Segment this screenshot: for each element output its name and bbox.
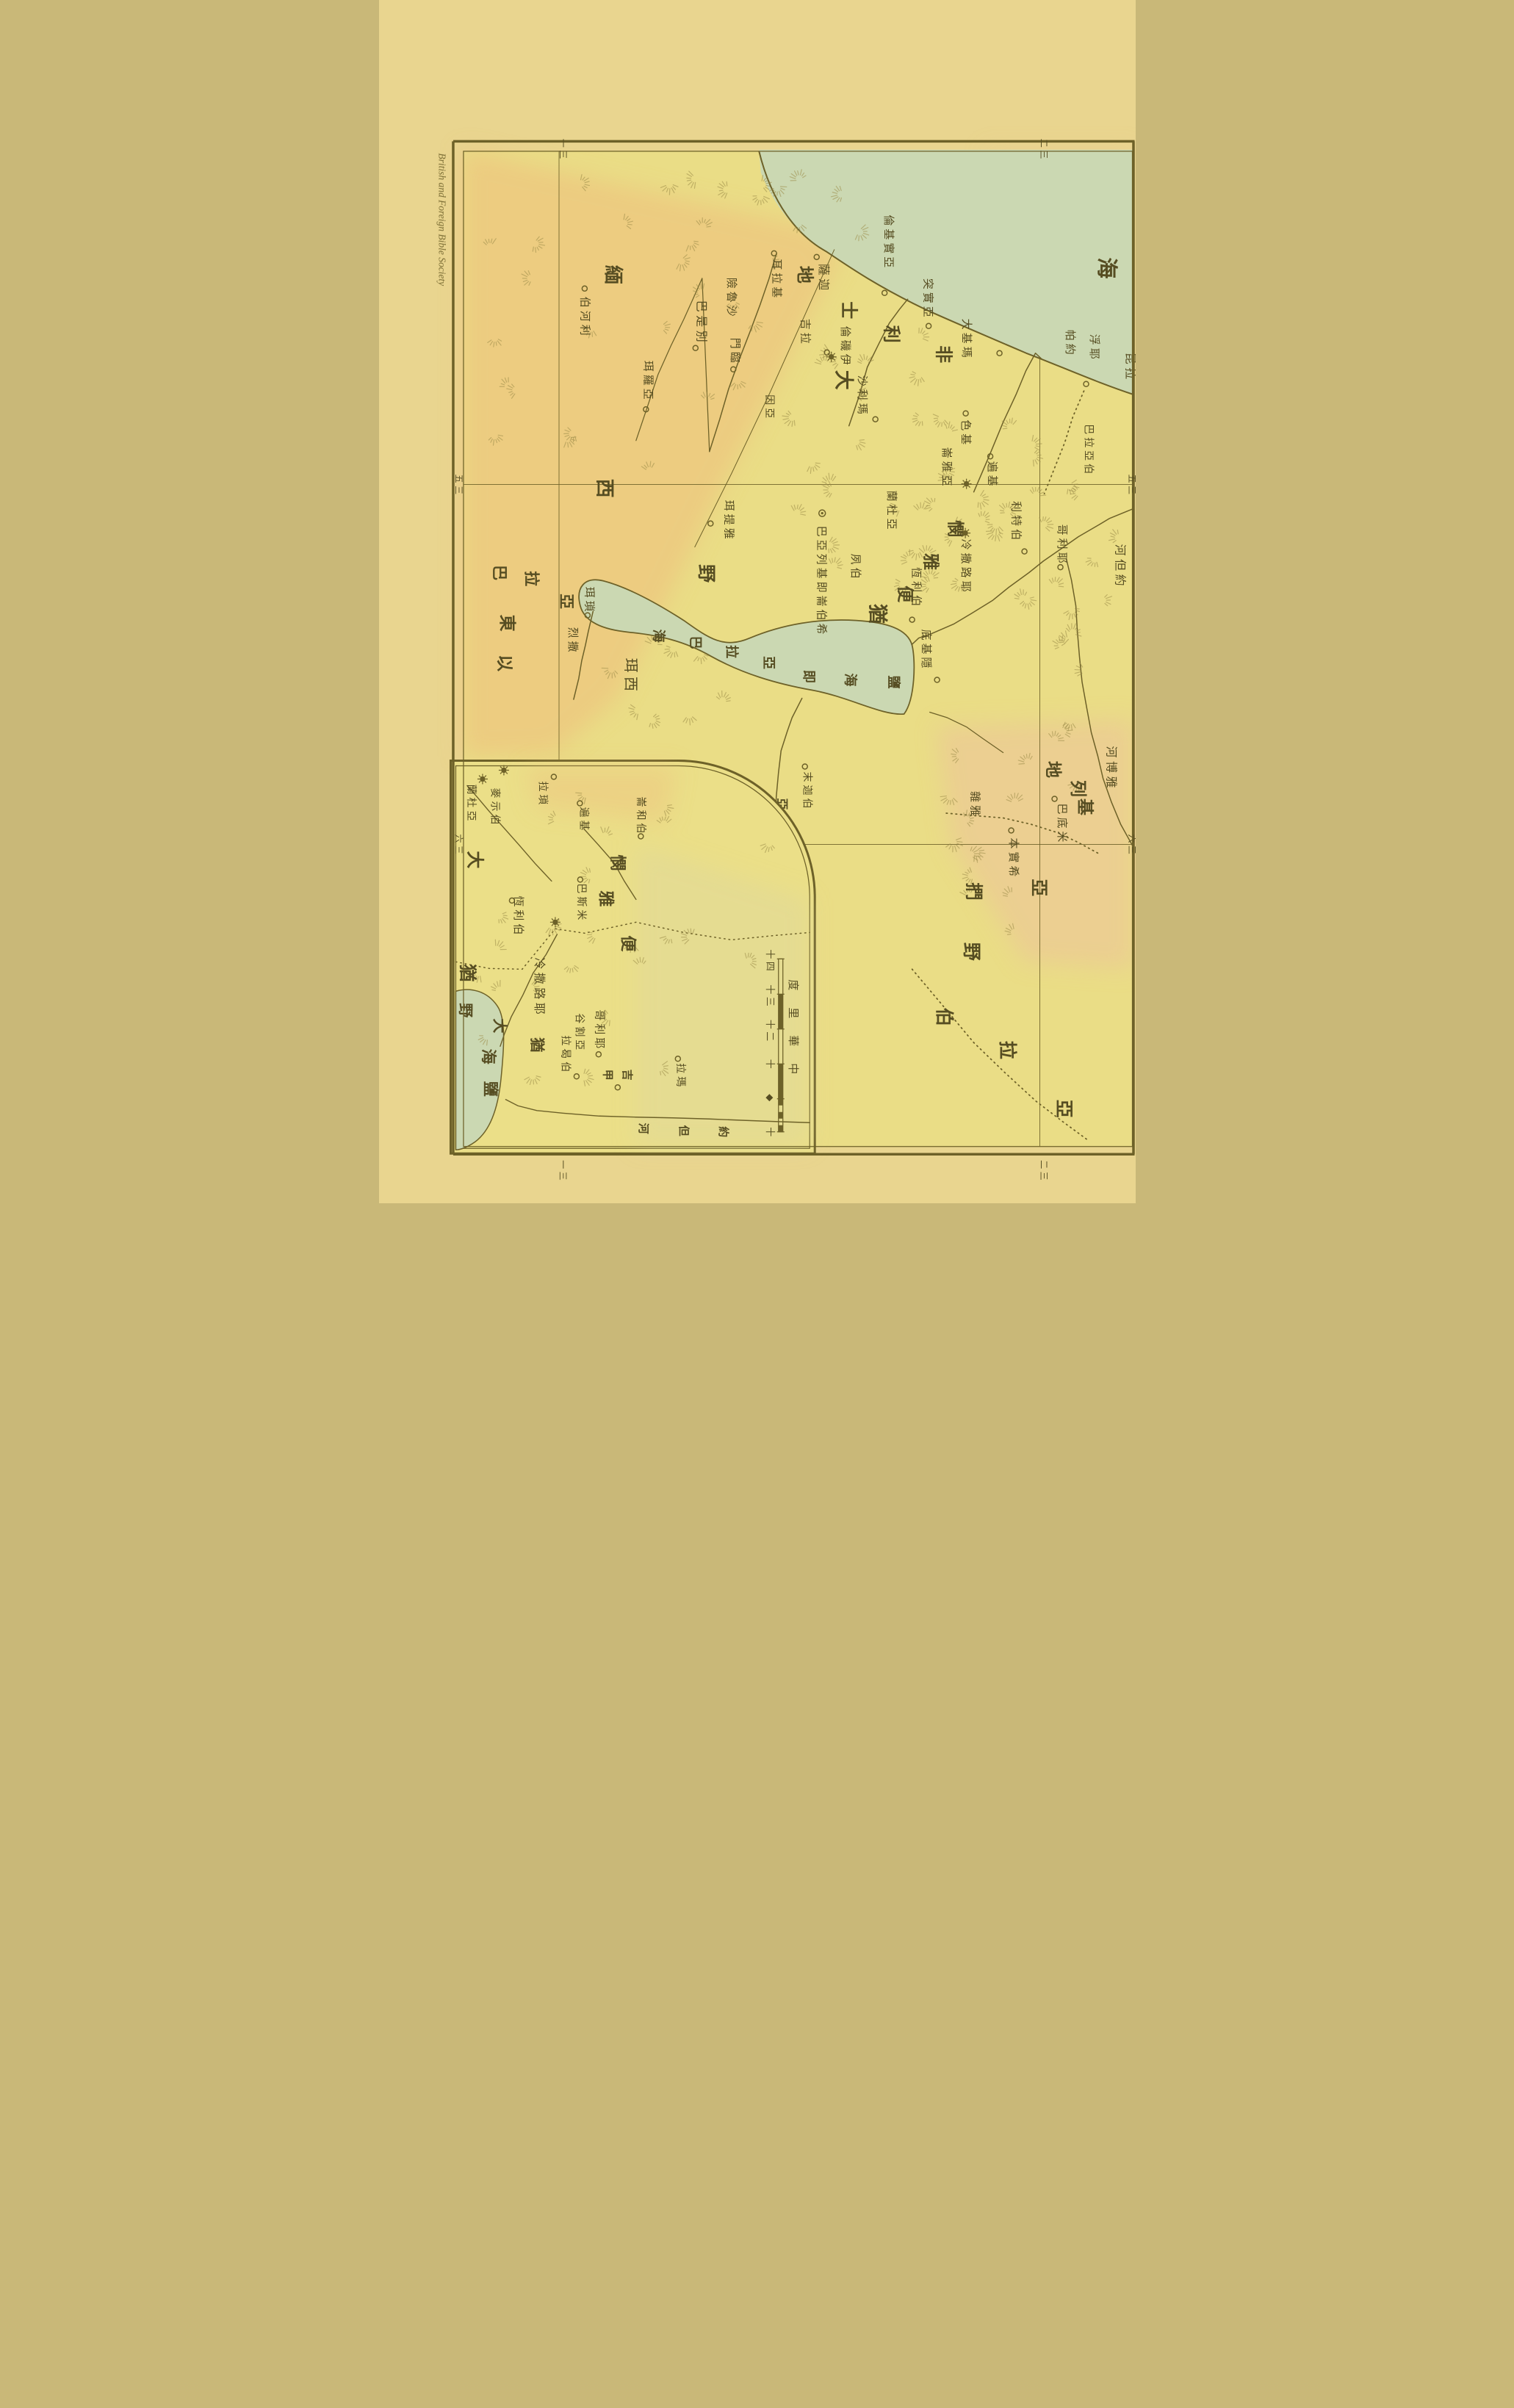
lon-label-left-36: 六三 [453,834,464,857]
jerusalem-label: 冷撒路耶 [959,539,972,595]
joppa-label: 帕約 [1063,330,1076,358]
beth-hoglah-inset-label: 拉曷伯 [559,1035,571,1075]
benjamin-inset-char-0: 便 [618,935,636,956]
bethel-label: 利特伯 [1009,501,1023,543]
mareshah-label: 沙利瑪 [855,375,868,417]
scale-title: 度里華中 [787,979,800,1091]
gilgal-inset-char-1: 甲 [601,1070,614,1084]
adullam-label: 蘭杜亞 [884,491,898,533]
rimmon-label: 門臨 [729,338,742,366]
medeba-label: 巴底米 [1055,803,1068,845]
attribution-text: British and Foreign Bible Society [436,153,447,286]
judah-char-1: 大 [832,370,854,395]
simeon-char-0: 西 [593,479,615,503]
lat-label-top-32: 二三 [1039,139,1049,162]
salt-sea-inset-char-1: 海 [479,1049,497,1069]
ashkelon-label: 倫基實亞 [882,215,895,270]
philistia-char-0: 非 [933,345,954,367]
zoar-label: 珥瑣 [583,587,596,615]
benjamin-inset-char-2: 憫 [608,854,626,875]
gilgal-inset-char-0: 吉 [621,1070,634,1084]
mizpah-inset-label: 巴斯米 [575,883,587,923]
jericho-label: 哥利耶 [1055,525,1068,566]
beth-shemesh-inset-label: 麥示伯 [489,787,500,827]
benjamin-inset-char-1: 雅 [596,890,615,911]
heshbon-label: 本實希 [1006,837,1020,879]
gilead-char-1: 列 [1067,780,1086,801]
simeon-char-1: 緬 [601,265,623,289]
gibeon-inset-label: 遍基 [577,807,590,833]
inset-map-environs-of-jerusalem: 十四十三十二十◆十度里華中 鹽海猶大猶大野便雅憫吉甲約但河冷撒路耶恆利伯蘭杜亞麥… [450,760,815,1153]
ashdod-label: 突實亞 [921,278,934,320]
judah-wilderness-inset-char-2: 野 [456,1003,474,1021]
ain-label: 因亞 [763,394,774,421]
judah-char-0: 猶 [865,603,889,629]
scale-tick-label-1: 十三 [763,984,774,1009]
seir-label: 珥西 [622,658,640,696]
lat-label-top-31: 一三 [558,139,568,162]
scale-seg-filled [778,994,782,1028]
lon-label-right-35: 五三 [1126,475,1135,497]
gaza-label: 薩迦 [817,264,831,294]
lat-label-bottom-32: 二三 [1039,1160,1049,1183]
scale-subseg [778,1125,782,1132]
bible-map-canvas: 海非利士地西緬猶大便雅憫以東亞拉巴野基列地亞捫亞拉伯野鹽海即亞拉巴海亞嫩川耳拉基… [379,0,1136,1203]
beth-zur-label: 夙伯 [848,554,862,582]
judah-inset-char-1: 大 [464,851,485,873]
philistia-char-1: 利 [881,325,901,347]
scale-tick-label-5: 十 [763,1127,774,1139]
jordan-river-inset-char-0: 約 [717,1126,730,1140]
bethlehem-label: 恆利伯 [909,567,923,609]
ammon-char-1: 捫 [963,882,984,904]
ramah-inset-label: 拉瑪 [674,1063,685,1089]
salt-sea-char-3: 亞 [760,656,776,673]
gezer-label: 色基 [959,419,972,447]
salt-sea-inset-char-0: 鹽 [481,1081,499,1101]
gerar-label: 耳拉基 [770,259,783,300]
ammon-char-0: 亞 [1028,879,1049,901]
arabian-desert-char-0: 亞 [1053,1100,1075,1123]
salt-sea-char-6: 海 [650,630,666,646]
rehoboth-label: 伯河利 [578,297,591,339]
beth-arabah-label: 巴拉亞伯 [1082,424,1094,477]
sharuhen-label: 險魯沙 [725,278,738,320]
gilead-char-2: 地 [1042,761,1061,782]
scale-tick-label-0: 十四 [763,949,774,973]
judah-inset-char-0: 猶 [457,963,477,986]
beth-gamul-label: 末迦伯 [801,771,812,811]
beersheba-label: 巴是別 [694,300,708,345]
jericho-inset-label: 哥利耶 [593,1009,606,1051]
zorah-inset-label: 拉瑣 [536,781,548,807]
beth-shemesh-inset-marker [501,768,505,772]
aijalon-marker [964,482,968,486]
scale-tick-label-3: 十 [763,1059,774,1071]
edom-char-1: 東 [497,615,516,636]
lat-label-bottom-31: 一三 [558,1160,568,1183]
arabah-char-0: 亞 [557,594,574,613]
philistia-char-2: 士 [838,301,859,323]
jabbok-river-label: 河博雅 [1104,746,1118,791]
scale-seg-filled [778,1064,782,1098]
benjamin-char-1: 雅 [920,553,940,574]
jordan-river-label: 河但約 [1113,544,1127,589]
eglon-marker [829,355,833,359]
jerusalem-inset-marker [552,920,557,924]
jordan-river-inset-char-2: 河 [637,1123,650,1137]
lon-label-right-36: 六三 [1126,834,1135,857]
japho-label: 浮耶 [1087,334,1100,362]
aroer-label: 珥羅亞 [641,361,655,403]
jordan-river-inset-char-1: 但 [677,1125,691,1139]
salt-sea-char-2: 即 [800,670,815,687]
salt-sea-char-4: 拉 [723,645,739,662]
scale-subseg [778,1099,782,1106]
aijalon-label: 崙雅亞 [940,447,953,489]
jerusalem-marker [963,531,967,536]
scale-tick-label-2: 十二 [763,1020,774,1044]
salt-sea-char-0: 鹽 [885,676,901,693]
arabian-desert-char-1: 拉 [997,1041,1018,1064]
en-gedi-label: 底基隱 [919,630,932,671]
achor-inset-label: 谷割亞 [573,1013,585,1053]
judah-wilderness-inset-char-1: 大 [491,1018,508,1037]
arabian-desert-char-2: 伯 [934,1008,955,1031]
makkedah-label: 大基瑪 [959,319,973,361]
jattir-label: 珥提雅 [722,500,735,542]
philistia-char-3: 地 [794,266,815,288]
salt-sea-char-1: 海 [842,674,858,691]
beth-horon-inset-label: 崙和伯 [635,796,646,836]
scale-subseg [778,1112,782,1119]
lachish-label: 吉拉 [799,319,812,347]
gibeon-label: 遍基 [985,461,998,489]
lon-label-left-35: 五三 [453,475,464,497]
hebron-label: 巴亞列基即崙伯希 [815,526,828,638]
salt-sea-char-5: 巴 [687,636,702,653]
scanned-map-page: 海非利士地西緬猶大便雅憫以東亞拉巴野基列地亞捫亞拉伯野鹽海即亞拉巴海亞嫩川耳拉基… [379,0,1136,1203]
adullam-inset-marker [480,776,484,781]
arabah-char-2: 巴 [490,565,508,585]
hebron-marker-dot [821,512,823,514]
scale-tick-label-4: ◆ [763,1094,774,1103]
judah-wilderness-inset-char-0: 猶 [528,1037,546,1056]
arabah-char-1: 拉 [522,571,540,591]
adullam-inset-label: 蘭杜亞 [465,784,477,823]
mediterranean-sea-char-0: 海 [1095,257,1120,284]
jerusalem-inset-label: 冷撒路耶 [532,957,546,1017]
edom-char-0: 以 [494,655,513,676]
eglon-label: 倫磯伊 [838,326,851,368]
arabian-desert-char-3: 野 [961,942,982,966]
jahaz-label: 雜雅 [968,791,981,819]
zered-label: 烈撒 [566,627,580,655]
bethlehem-inset-label: 恆利伯 [512,895,525,937]
wilderness-char-0: 野 [695,564,716,588]
